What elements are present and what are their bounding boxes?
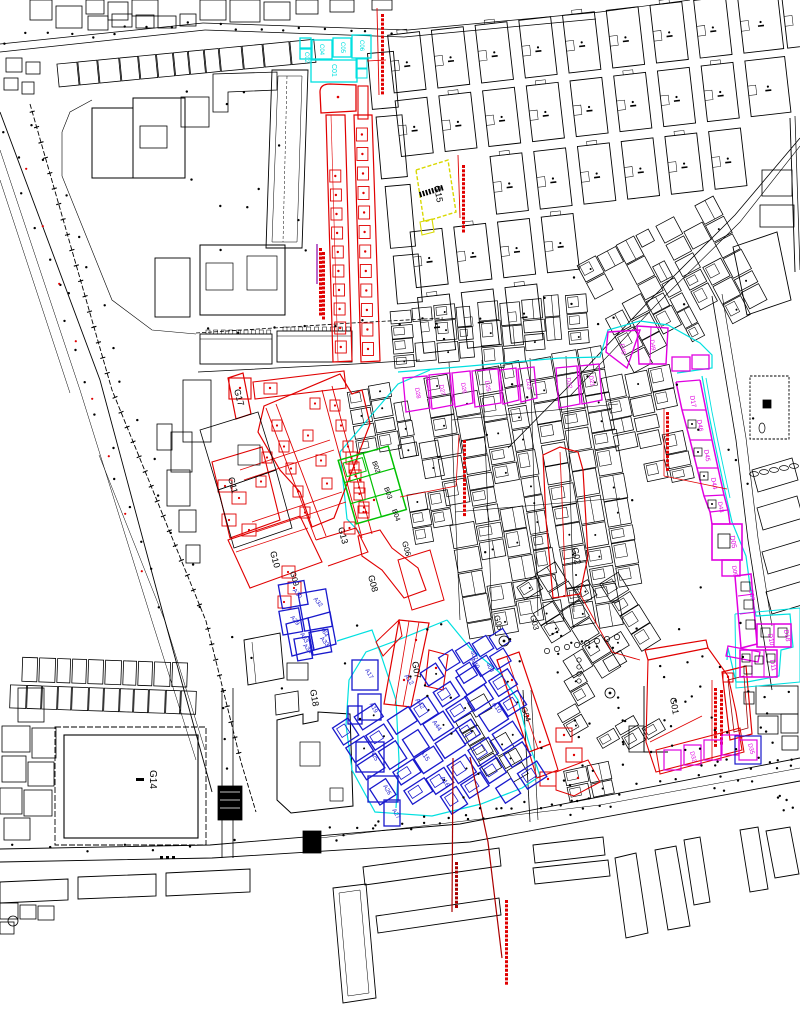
svg-text:C05: C05 [339,42,345,54]
svg-text:C02: C02 [303,52,309,64]
svg-text:C01: C01 [330,64,337,77]
svg-text:G14: G14 [147,770,158,789]
svg-text:C04: C04 [318,44,324,56]
svg-text:C06: C06 [358,40,364,52]
